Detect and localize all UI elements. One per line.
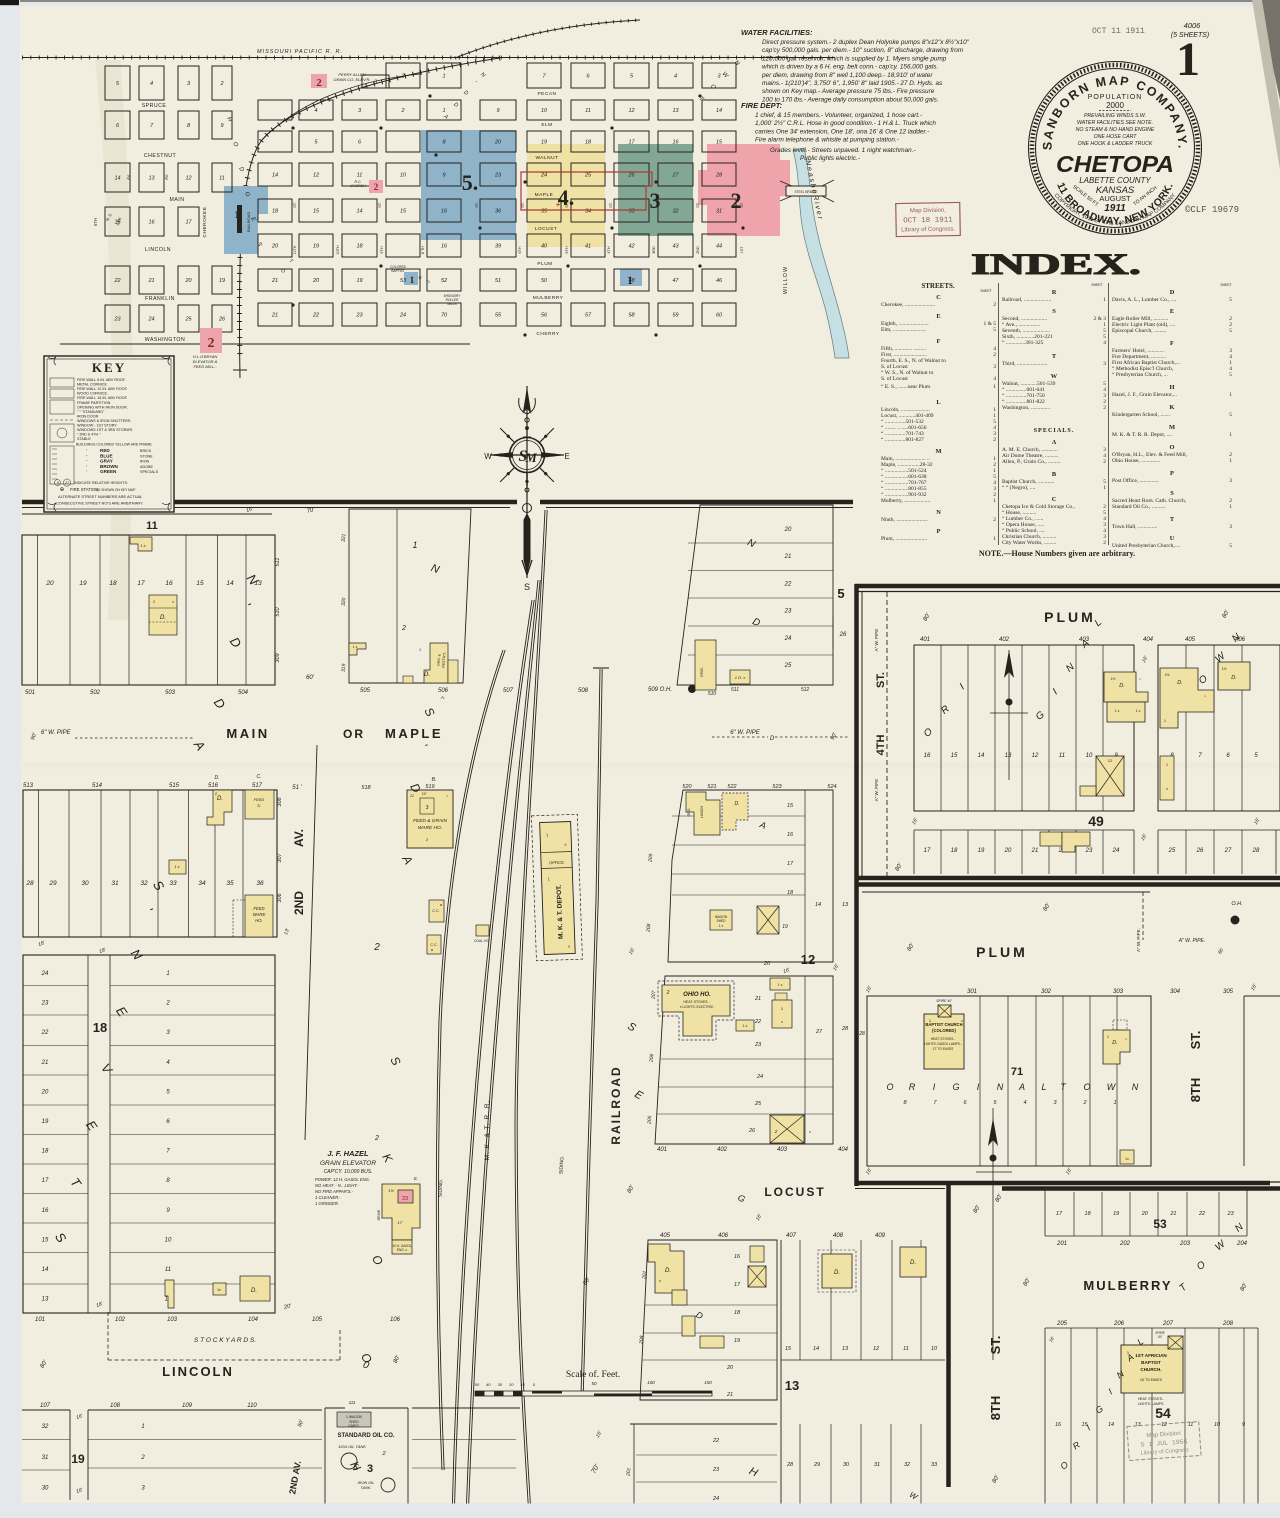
svg-text:405: 405: [660, 1233, 671, 1239]
svg-text:401: 401: [920, 637, 930, 643]
svg-text:FEED: FEED: [253, 906, 264, 911]
svg-text:1 x: 1 x: [719, 924, 724, 928]
svg-text:FIRE DEPT:: FIRE DEPT:: [741, 101, 783, 110]
svg-text:G: G: [952, 1082, 959, 1092]
svg-text:6" W. PIPE: 6" W. PIPE: [41, 730, 72, 736]
svg-text:CAP'CY. 10,000 BUS.: CAP'CY. 10,000 BUS.: [324, 1169, 373, 1175]
svg-text:H: H: [1170, 384, 1175, 391]
svg-text:LINCOLN: LINCOLN: [162, 1364, 234, 1379]
svg-text:25: 25: [184, 317, 192, 323]
svg-text:1: 1: [1107, 1035, 1109, 1039]
svg-text:1: 1: [442, 74, 445, 80]
svg-text:C.C.: C.C.: [432, 909, 439, 913]
svg-text:1: 1: [1113, 1100, 1116, 1106]
svg-text:WASHINGTON: WASHINGTON: [145, 337, 185, 343]
svg-text:100 to 170 lbs.- Average daily: 100 to 170 lbs.- Average daily consumpti…: [762, 96, 939, 103]
svg-text:403: 403: [777, 1147, 788, 1153]
svg-text:“ ...............801-827: “ ...............801-827: [881, 436, 924, 443]
svg-text:50': 50': [1158, 1335, 1163, 1339]
svg-text:17: 17: [185, 220, 192, 226]
svg-text:10: 10: [1214, 1422, 1221, 1428]
svg-text:24: 24: [399, 313, 406, 319]
svg-text:523: 523: [772, 784, 782, 790]
svg-text:3: 3: [1229, 524, 1232, 530]
svg-text:25: 25: [754, 1101, 762, 1107]
svg-text:A: A: [1018, 1082, 1025, 1092]
svg-text:Fourth, E. S., N. of Walnut: Fourth, E. S., N. of Walnut to: [881, 357, 946, 364]
svg-text:60': 60': [306, 675, 315, 681]
svg-text:E.: E.: [414, 1176, 418, 1181]
svg-text:1911: 1911: [1104, 203, 1126, 214]
svg-text:GRAIN CO. ELEV'R.: GRAIN CO. ELEV'R.: [334, 77, 371, 82]
svg-text:METAL CORNICE: METAL CORNICE: [77, 383, 107, 387]
svg-text:19: 19: [1113, 1211, 1119, 1217]
svg-text:RAILROAD: RAILROAD: [246, 212, 251, 233]
svg-text:19: 19: [734, 1338, 740, 1344]
svg-text:D.: D.: [665, 1268, 671, 1274]
svg-text:SPRUCE: SPRUCE: [142, 103, 167, 109]
svg-text:5TH: 5TH: [93, 218, 98, 226]
svg-text:31: 31: [42, 1455, 49, 1461]
svg-text:16: 16: [148, 220, 155, 226]
svg-text:19: 19: [71, 1452, 85, 1466]
svg-text:Ninth, .......................: Ninth, .......................: [881, 517, 929, 523]
svg-text:55: 55: [495, 313, 502, 319]
svg-text:PREVAILING WINDS S.W.: PREVAILING WINDS S.W.: [1084, 113, 1146, 119]
svg-text:4: 4: [1103, 340, 1106, 346]
svg-text:“ Methodist Episc'l Churc: “ Methodist Episc'l Church,: [1112, 365, 1174, 372]
svg-text:WILLOW: WILLOW: [783, 266, 789, 294]
svg-text:AV.: AV.: [126, 174, 131, 180]
svg-text:21: 21: [1169, 1211, 1176, 1217]
svg-text:2: 2: [381, 1451, 385, 1457]
svg-text:5: 5: [1229, 412, 1232, 418]
svg-text:O: O: [886, 1082, 893, 1092]
svg-text:CHURCH.: CHURCH.: [1140, 1367, 1161, 1372]
svg-text:“ Ave., ................: “ Ave., ................: [1002, 321, 1041, 328]
svg-text:STANDARD OIL CO.: STANDARD OIL CO.: [337, 1433, 394, 1439]
svg-text:30: 30: [843, 1462, 850, 1468]
svg-text:201: 201: [1056, 1241, 1067, 1247]
svg-text:C.C.: C.C.: [430, 943, 437, 947]
svg-text:16: 16: [787, 832, 794, 838]
svg-text:17': 17': [397, 1220, 402, 1225]
svg-text:40: 40: [486, 1382, 491, 1387]
svg-text:Town Hall, ..............: Town Hall, ..............: [1112, 524, 1158, 530]
svg-text:STABLE: STABLE: [77, 437, 91, 441]
svg-text:C.: C.: [257, 774, 262, 780]
svg-text:Davis, A. L., Lumber Co., .: Davis, A. L., Lumber Co., ....: [1112, 297, 1177, 303]
svg-text:14: 14: [815, 902, 821, 908]
svg-text:521: 521: [707, 784, 716, 790]
svg-text:GAR'G․: GAR'G․: [348, 1424, 360, 1428]
svg-text:111: 111: [349, 1400, 356, 1405]
svg-text:ONE HOSE CART: ONE HOSE CART: [1094, 134, 1138, 140]
svg-text:CHURCH: CHURCH: [350, 184, 366, 188]
svg-text:10TH: 10TH: [336, 245, 340, 255]
svg-text:FRAME PARTITION.: FRAME PARTITION.: [77, 401, 111, 405]
svg-text:509 O.H.: 509 O.H.: [648, 687, 672, 693]
svg-text:13: 13: [785, 1378, 799, 1393]
svg-text:28: 28: [786, 1462, 794, 1468]
svg-text:12: 12: [873, 1346, 879, 1352]
svg-text:2: 2: [1103, 459, 1106, 465]
svg-text:14: 14: [1108, 1422, 1114, 1428]
svg-text:302: 302: [1041, 989, 1052, 995]
svg-text:16: 16: [441, 209, 448, 215]
svg-text:ALTERNATE STREET NUMBERS AR: ALTERNATE STREET NUMBERS ARE ACTUAL: [58, 494, 143, 499]
svg-text:107: 107: [40, 1403, 51, 1409]
svg-text:50: 50: [541, 278, 548, 284]
svg-text:SHEET: SHEET: [1220, 283, 1231, 287]
svg-text:ENG. x: ENG. x: [397, 1248, 408, 1252]
svg-text:Plum, .......................: Plum, .......................: [881, 536, 928, 542]
svg-text:26: 26: [839, 632, 847, 638]
svg-text:1: 1: [412, 540, 417, 550]
svg-text:cap'cy 500,000 gals. per diem.: cap'cy 500,000 gals. per diem.- 10" suct…: [762, 47, 964, 54]
svg-text:18: 18: [787, 890, 794, 896]
svg-text:CHERRY: CHERRY: [536, 331, 559, 337]
svg-text:5: 5: [993, 327, 996, 333]
svg-text:20: 20: [726, 1365, 734, 1371]
svg-text:22: 22: [41, 1030, 49, 1036]
svg-text:P: P: [1170, 470, 1174, 477]
svg-text:42: 42: [628, 244, 634, 250]
svg-text:C: C: [936, 294, 941, 301]
svg-text:“ E. S., .......near Plum: “ E. S., .......near Plum: [881, 383, 931, 390]
svg-text:1x: 1x: [217, 1288, 221, 1292]
svg-text:22: 22: [113, 278, 120, 284]
svg-text:PLUM: PLUM: [976, 944, 1028, 960]
svg-text:x: x: [659, 1278, 661, 1283]
svg-text:11: 11: [219, 176, 225, 182]
svg-text:2: 2: [374, 1135, 379, 1142]
svg-text:6TH: 6TH: [518, 246, 522, 253]
svg-text:GRAY: GRAY: [100, 459, 113, 464]
svg-text:51: 51: [495, 278, 501, 284]
svg-text:14: 14: [813, 1346, 819, 1352]
svg-text:26: 26: [1196, 848, 1204, 854]
svg-text:70: 70: [441, 313, 448, 319]
svg-text:23: 23: [1085, 848, 1093, 854]
svg-text:CHEROKEE: CHEROKEE: [202, 207, 208, 238]
svg-text:202: 202: [1119, 1241, 1131, 1247]
svg-text:“ Public School, ....: “ Public School, ....: [1002, 527, 1045, 534]
svg-text:21: 21: [754, 996, 761, 1002]
svg-text:“ ........ .. .....601-656: “ ........ .. .....601-656: [881, 424, 927, 431]
svg-text:LOCUST: LOCUST: [764, 1185, 825, 1199]
svg-text:23: 23: [712, 1467, 720, 1473]
svg-text:5: 5: [1229, 328, 1232, 334]
svg-text:2: 2: [774, 1129, 778, 1134]
svg-text:2: 2: [993, 517, 996, 523]
svg-text:AS SHOWN ON KEY MAP.: AS SHOWN ON KEY MAP.: [96, 488, 136, 492]
svg-text:ST.: ST.: [475, 202, 479, 208]
svg-text:28: 28: [715, 173, 723, 179]
svg-text:19: 19: [782, 924, 788, 930]
svg-text:C: C: [1052, 496, 1057, 503]
svg-text:100: 100: [647, 1380, 655, 1385]
svg-text:205: 205: [647, 1115, 654, 1125]
svg-text:8TH: 8TH: [1188, 1078, 1203, 1103]
svg-text:1 GRINDER.: 1 GRINDER.: [315, 1201, 339, 1206]
svg-text:N: N: [997, 1082, 1004, 1092]
svg-text:23: 23: [41, 1001, 49, 1007]
svg-text:POWER: 12 H. GASOL ENG.: POWER: 12 H. GASOL ENG.: [315, 1177, 370, 1182]
svg-text:9: 9: [442, 173, 445, 179]
svg-text:13: 13: [672, 108, 679, 114]
svg-text:A" W. PIPE.: A" W. PIPE.: [1178, 938, 1206, 944]
svg-text:203: 203: [1179, 1241, 1191, 1247]
svg-text:16: 16: [42, 1208, 49, 1214]
svg-text:MAIN: MAIN: [170, 197, 185, 203]
svg-text:3RD: 3RD: [652, 246, 656, 254]
svg-text:2ND: 2ND: [292, 891, 306, 915]
svg-text:MULBERRY: MULBERRY: [533, 295, 564, 301]
svg-text:HEAT: STOVES.-: HEAT: STOVES.-: [1138, 1397, 1164, 1401]
svg-text:N: N: [1132, 1082, 1139, 1092]
svg-text:“ “ (Negro), ....: “ “ (Negro), ....: [1002, 484, 1036, 491]
svg-text:WARE HO.: WARE HO.: [418, 825, 442, 831]
svg-text:11: 11: [1188, 1422, 1194, 1428]
svg-text:OHIO HO.: OHIO HO.: [683, 992, 711, 998]
svg-text:Public lights electric.-: Public lights electric.-: [800, 155, 860, 162]
svg-text:(COLORED): (COLORED): [932, 1028, 956, 1033]
svg-text:MULBERRY: MULBERRY: [1083, 1278, 1172, 1293]
svg-text:208: 208: [646, 923, 653, 933]
svg-text:404: 404: [838, 1147, 849, 1153]
svg-text:Standard Oil Co., ..........: Standard Oil Co., ..........: [1112, 504, 1166, 510]
svg-text:“ Lumber Co., ......: “ Lumber Co., ......: [1002, 515, 1044, 522]
svg-text:L: L: [936, 399, 940, 406]
svg-text:GRO.: GRO.: [699, 667, 704, 677]
svg-text:SPECIALS.: SPECIALS.: [1034, 427, 1075, 434]
svg-text:POPULATION: POPULATION: [1088, 94, 1143, 101]
svg-text:AV.: AV.: [292, 829, 306, 847]
svg-text:28: 28: [841, 1026, 849, 1032]
svg-text:S. of Locust: S. of Locust: [881, 363, 908, 370]
svg-text:204: 204: [1236, 1241, 1248, 1247]
svg-text:15: 15: [196, 580, 204, 587]
svg-text:1: 1: [141, 1424, 144, 1430]
svg-text:11: 11: [357, 173, 363, 179]
svg-text:54: 54: [1155, 1405, 1171, 1421]
svg-text:32: 32: [904, 1462, 910, 1468]
svg-text:D.: D.: [251, 1288, 257, 1294]
svg-text:“ .................501-524: “ .................501-524: [881, 467, 927, 474]
svg-text:19: 19: [541, 140, 547, 146]
svg-text:1 x: 1 x: [1136, 709, 1141, 713]
svg-text:2: 2: [400, 108, 404, 114]
svg-text:14: 14: [226, 580, 234, 587]
svg-text:FEED: FEED: [254, 797, 265, 802]
svg-text:120,000 gal. reservoir, which: 120,000 gal. reservoir, which is supplie…: [762, 55, 947, 62]
svg-text:205: 205: [1056, 1321, 1068, 1327]
svg-text:GREEN: GREEN: [100, 469, 117, 474]
svg-text:CONSECUTIVE STREET NO’S ARE: CONSECUTIVE STREET NO’S ARE ARBITRARY.: [56, 501, 143, 506]
svg-text:SHEET: SHEET: [980, 289, 991, 293]
svg-text:4TH: 4TH: [607, 246, 611, 253]
svg-text:16: 16: [734, 1254, 741, 1260]
svg-text:BRICK: BRICK: [140, 449, 152, 453]
svg-text:108: 108: [110, 1403, 121, 1409]
svg-text:3: 3: [367, 1463, 373, 1475]
svg-text:49: 49: [1088, 813, 1104, 829]
svg-text:22: 22: [312, 313, 319, 319]
svg-text:Ohio House, ..............: Ohio House, ..............: [1112, 458, 1161, 464]
svg-text:15: 15: [785, 1346, 792, 1352]
svg-text:110: 110: [247, 1403, 257, 1409]
svg-text:AUGUST: AUGUST: [1099, 194, 1131, 203]
svg-text:A" W. PIPE: A" W. PIPE: [874, 779, 879, 802]
svg-text:18: 18: [1085, 1211, 1092, 1217]
svg-text:SPECIALS: SPECIALS: [140, 470, 159, 474]
svg-text:S.: S.: [257, 803, 261, 808]
svg-text:ST.: ST.: [609, 202, 613, 208]
svg-text:per diem, drawing from 8" well: per diem, drawing from 8" well 1,100 dee…: [761, 72, 933, 79]
svg-text:26: 26: [218, 317, 226, 323]
svg-text:508: 508: [578, 688, 589, 694]
svg-text:x: x: [961, 1019, 963, 1023]
svg-text:Hazel, J. F., Grain Elevator: Hazel, J. F., Grain Elevator,...: [1112, 392, 1178, 398]
svg-text:12: 12: [1161, 1422, 1167, 1428]
svg-text:208: 208: [639, 1335, 646, 1345]
svg-text:FIRE STATION,: FIRE STATION,: [70, 487, 99, 492]
svg-text:1: 1: [993, 384, 996, 390]
svg-text:INDEX.: INDEX.: [971, 248, 1141, 281]
svg-text:L: L: [1041, 1082, 1046, 1092]
svg-text:11: 11: [146, 520, 158, 532]
svg-text:“ ...............801-822: “ ...............801-822: [1002, 398, 1045, 405]
svg-text:17: 17: [787, 861, 794, 867]
svg-text:D.: D.: [735, 801, 740, 807]
svg-text:M. K. & T. R. R. Depot, ....: M. K. & T. R. R. Depot, ....: [1112, 432, 1173, 438]
svg-text:3: 3: [650, 188, 661, 213]
svg-text:12: 12: [1108, 758, 1113, 763]
svg-text:1½: 1½: [388, 1188, 394, 1193]
svg-text:1 CLEANER.-: 1 CLEANER.-: [315, 1195, 341, 1200]
svg-text:20: 20: [184, 278, 192, 284]
svg-text:M. K. & T. R. R.: M. K. & T. R. R.: [484, 1100, 491, 1161]
svg-text:9: 9: [496, 108, 499, 114]
svg-text:2: 2: [1103, 540, 1106, 546]
svg-text:30: 30: [81, 880, 89, 887]
svg-text:TANK.: TANK.: [361, 1486, 372, 1490]
svg-text:1: 1: [1164, 719, 1166, 723]
svg-text:207: 207: [1162, 1321, 1174, 1327]
svg-text:3: 3: [993, 364, 996, 370]
svg-text:24: 24: [540, 173, 547, 179]
svg-text:SPIRE 40': SPIRE 40': [936, 999, 952, 1003]
svg-text:13: 13: [842, 902, 849, 908]
svg-text:405: 405: [1185, 637, 1196, 643]
svg-text:©CLF 19679: ©CLF 19679: [1185, 205, 1239, 215]
svg-text:1 x: 1 x: [1115, 709, 1120, 713]
svg-text:2: 2: [165, 1001, 170, 1007]
svg-text:“ W. S., N. of Walnut to: “ W. S., N. of Walnut to: [881, 369, 934, 376]
svg-text:59: 59: [672, 313, 678, 319]
svg-text:9: 9: [220, 123, 223, 129]
svg-text:LABETTE COUNTY: LABETTE COUNTY: [1079, 176, 1151, 185]
svg-text:MAPLE: MAPLE: [385, 726, 443, 741]
svg-text:520: 520: [682, 784, 692, 790]
svg-text:D.: D.: [1119, 683, 1125, 689]
svg-text:5: 5: [1229, 297, 1232, 303]
svg-text:207: 207: [651, 990, 658, 1000]
svg-text:46: 46: [716, 278, 723, 284]
svg-text:19: 19: [313, 244, 319, 250]
svg-text:LINCOLN: LINCOLN: [145, 247, 171, 253]
svg-text:13: 13: [148, 176, 155, 182]
svg-text:21: 21: [726, 1392, 733, 1398]
svg-text:1: 1: [410, 275, 415, 285]
svg-text:21: 21: [784, 554, 792, 560]
svg-text:ST.: ST.: [875, 672, 887, 688]
svg-text:57: 57: [585, 313, 592, 319]
svg-text:1 WAGON: 1 WAGON: [346, 1415, 362, 1419]
svg-text:5: 5: [1229, 543, 1232, 549]
svg-text:320: 320: [341, 597, 348, 606]
svg-text:519: 519: [425, 784, 434, 790]
svg-text:514: 514: [92, 783, 103, 789]
svg-text:E: E: [936, 313, 940, 320]
svg-text:R: R: [1052, 289, 1057, 296]
svg-text:1,000' 2½" C.R.L. Hose in goo: 1,000' 2½" C.R.L. Hose in good condition…: [755, 119, 936, 127]
svg-text:104: 104: [248, 1317, 259, 1323]
svg-text:D: D: [1170, 289, 1175, 296]
svg-text:Grades level.- Streets unpaved: Grades level.- Streets unpaved. 1 night …: [770, 147, 916, 154]
svg-text:13: 13: [1005, 753, 1012, 759]
svg-text:D.: D.: [424, 672, 430, 678]
svg-text:“ .................901-932: “ .................901-932: [881, 491, 927, 498]
svg-text:20: 20: [41, 1089, 49, 1095]
svg-text:1ST: 1ST: [740, 246, 744, 254]
svg-text:ST.: ST.: [293, 202, 297, 208]
svg-text:4: 4: [150, 81, 153, 87]
svg-text:511: 511: [275, 558, 281, 567]
svg-text:501: 501: [25, 690, 35, 696]
svg-text:Episcopal Church, .........: Episcopal Church, .........: [1112, 328, 1167, 334]
svg-text:SIDING.: SIDING.: [438, 1179, 445, 1198]
svg-text:303: 303: [1113, 989, 1124, 995]
svg-text:“ Presbyterian Church, ...: “ Presbyterian Church, ...: [1112, 371, 1168, 378]
svg-text:PLUM: PLUM: [1044, 609, 1096, 625]
svg-text:Kindergarten School, .......: Kindergarten School, .......: [1112, 412, 1171, 418]
svg-text:D.: D.: [160, 615, 166, 621]
svg-text:33: 33: [169, 880, 177, 887]
svg-text:ST.: ST.: [378, 202, 382, 208]
svg-text:40: 40: [541, 244, 548, 250]
svg-text:39: 39: [495, 244, 501, 250]
svg-text:Fire alarm telephone & whistle: Fire alarm telephone & whistle at pumpin…: [755, 137, 899, 144]
svg-text:19: 19: [42, 1119, 49, 1125]
svg-text:11: 11: [903, 1346, 909, 1352]
svg-text:105: 105: [312, 1317, 323, 1323]
svg-text:2: 2: [1082, 1100, 1086, 1106]
svg-text:2: 2: [316, 77, 322, 89]
svg-text:14: 14: [114, 176, 120, 182]
svg-text:O: O: [1083, 1082, 1090, 1092]
svg-text:M: M: [524, 450, 537, 465]
svg-text:24: 24: [147, 317, 154, 323]
svg-text:24: 24: [1112, 848, 1120, 854]
svg-text:1: 1: [1103, 485, 1106, 491]
svg-text:23: 23: [754, 1042, 762, 1048]
svg-text:301: 301: [967, 989, 977, 995]
svg-text:47: 47: [672, 278, 679, 284]
svg-text:RED: RED: [100, 448, 110, 453]
svg-text:109: 109: [182, 1403, 193, 1409]
